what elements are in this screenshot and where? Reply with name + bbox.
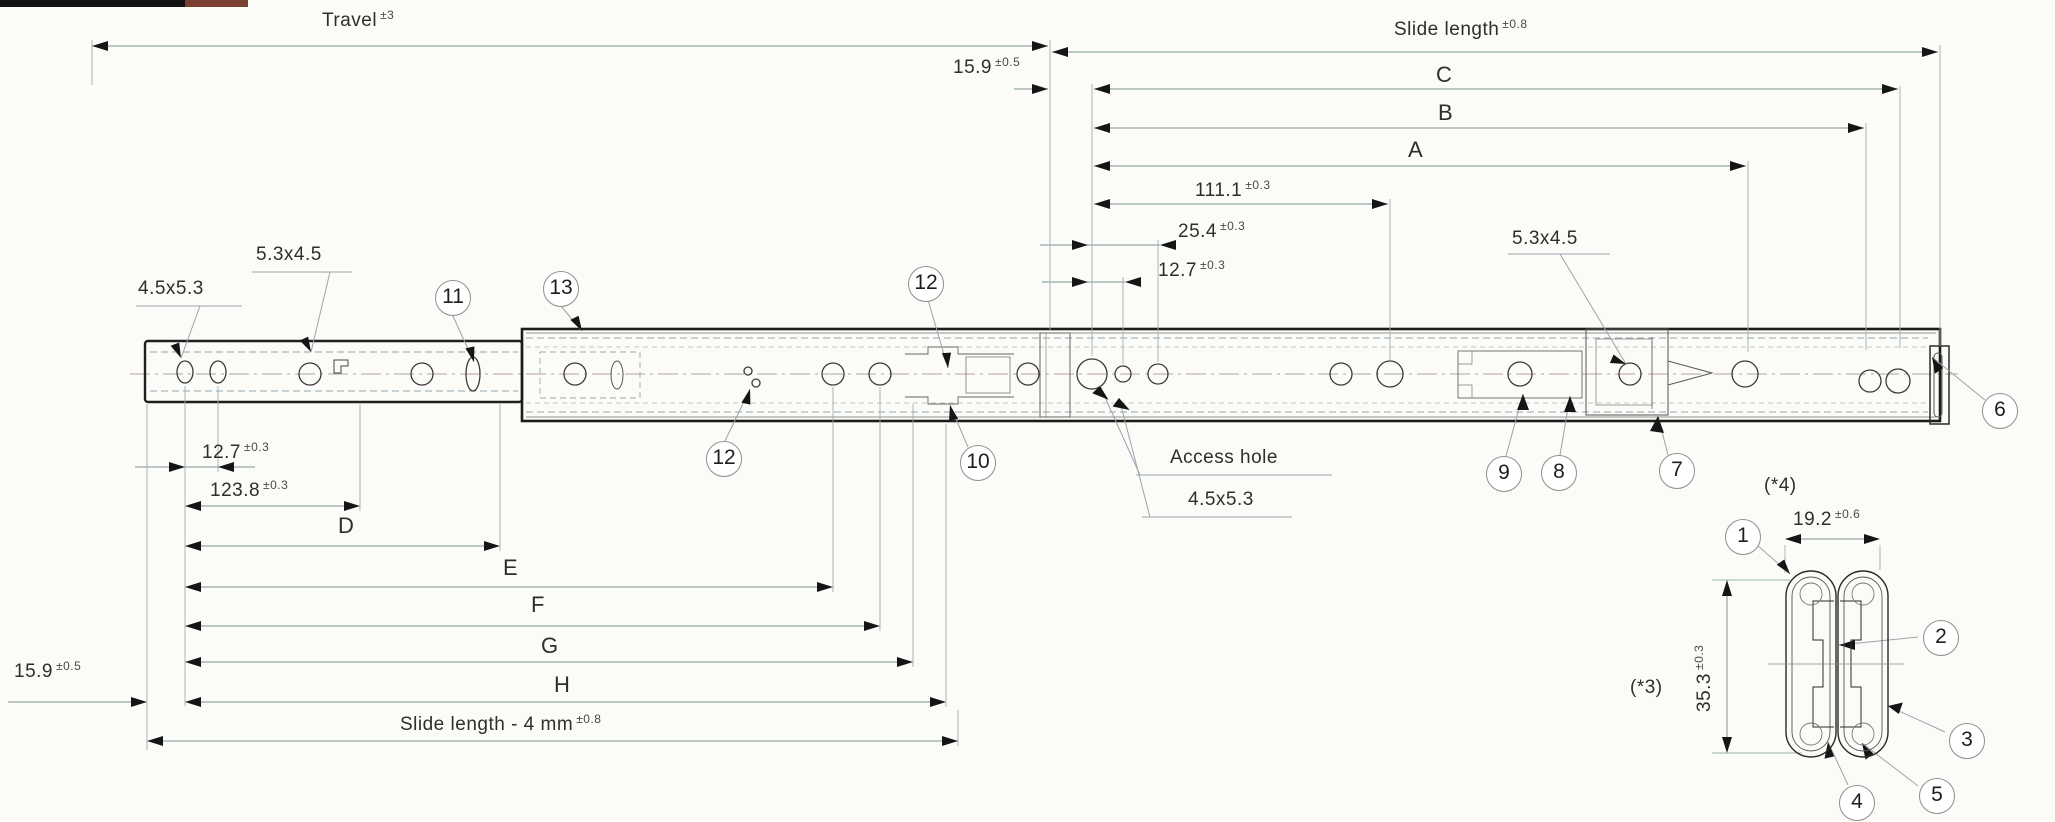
dimension-lines bbox=[8, 40, 1940, 753]
dim-slide-length-minus-tol: ±0.8 bbox=[576, 712, 601, 726]
dim-1238-label: 123.8±0.3 bbox=[210, 478, 288, 502]
dim-159-top-label: 15.9±0.5 bbox=[953, 55, 1020, 79]
dim-1238-value: 123.8 bbox=[210, 480, 260, 501]
balloon-2: 2 bbox=[1923, 620, 1959, 656]
drawer-slide-technical-drawing: Travel±3 Slide length±0.8 15.9±0.5 C B A… bbox=[0, 0, 2055, 822]
dim-E-label: E bbox=[503, 555, 518, 581]
dim-D-label: D bbox=[338, 513, 354, 539]
dim-G-label: G bbox=[541, 633, 559, 659]
dim-127-bottom-tol: ±0.3 bbox=[244, 440, 269, 454]
hole-5345-right-label: 5.3x4.5 bbox=[1512, 228, 1578, 250]
dim-1111-tol: ±0.3 bbox=[1245, 178, 1270, 192]
dim-127-top-value: 12.7 bbox=[1158, 260, 1197, 281]
balloon-12-lower: 12 bbox=[706, 441, 742, 477]
dim-127-top-label: 12.7±0.3 bbox=[1158, 258, 1225, 282]
balloon-1: 1 bbox=[1725, 519, 1761, 555]
balloon-8: 8 bbox=[1541, 455, 1577, 491]
dim-127-bottom-label: 12.7±0.3 bbox=[202, 440, 269, 464]
dim-1111-value: 111.1 bbox=[1195, 180, 1242, 201]
dim-159-bottom-label: 15.9±0.5 bbox=[14, 659, 81, 683]
hole-4553-left-label: 4.5x5.3 bbox=[138, 278, 204, 300]
dim-127-top-tol: ±0.3 bbox=[1200, 258, 1225, 272]
balloon-6: 6 bbox=[1982, 393, 2018, 429]
dim-159-top-tol: ±0.5 bbox=[995, 55, 1020, 69]
balloon-10: 10 bbox=[960, 445, 996, 481]
balloon-7: 7 bbox=[1659, 453, 1695, 489]
dim-slide-length-minus-value: Slide length - 4 mm bbox=[400, 714, 573, 735]
hole-5345-left-label: 5.3x4.5 bbox=[256, 244, 322, 266]
dim-353-value: 35.3 bbox=[1694, 673, 1715, 712]
dim-1238-tol: ±0.3 bbox=[263, 478, 288, 492]
balloon-3: 3 bbox=[1949, 723, 1985, 759]
note-star3-label: (*3) bbox=[1630, 677, 1663, 699]
balloon-11: 11 bbox=[435, 280, 471, 316]
dim-travel-label: Travel±3 bbox=[322, 8, 394, 32]
balloon-4: 4 bbox=[1839, 785, 1875, 821]
drawing-linework bbox=[0, 0, 2055, 822]
dim-F-label: F bbox=[531, 592, 545, 618]
dim-353-tol: ±0.3 bbox=[1692, 645, 1706, 670]
note-star4-label: (*4) bbox=[1764, 475, 1797, 497]
dim-353-label: 35.3±0.3 bbox=[1692, 645, 1716, 712]
balloon-5: 5 bbox=[1919, 778, 1955, 814]
dim-travel-value: Travel bbox=[322, 10, 377, 31]
dim-B-label: B bbox=[1438, 100, 1453, 126]
balloon-12-upper: 12 bbox=[908, 266, 944, 302]
dim-159-bottom-value: 15.9 bbox=[14, 661, 53, 682]
dim-192-value: 19.2 bbox=[1793, 509, 1832, 530]
dim-slide-length-tol: ±0.8 bbox=[1502, 17, 1527, 31]
dim-254-tol: ±0.3 bbox=[1220, 219, 1245, 233]
leader-arrowheads bbox=[168, 314, 1945, 762]
dim-travel-tol: ±3 bbox=[380, 8, 394, 22]
dim-C-label: C bbox=[1436, 62, 1452, 88]
mounting-holes bbox=[177, 357, 1910, 393]
dim-1111-label: 111.1±0.3 bbox=[1195, 178, 1271, 202]
dimension-arrowheads bbox=[92, 41, 1938, 753]
dim-159-bottom-tol: ±0.5 bbox=[56, 659, 81, 673]
dim-127-bottom-value: 12.7 bbox=[202, 442, 241, 463]
dim-A-label: A bbox=[1408, 137, 1423, 163]
cross-section-view bbox=[1768, 571, 1904, 757]
balloon-13: 13 bbox=[543, 271, 579, 307]
dim-192-tol: ±0.6 bbox=[1835, 507, 1860, 521]
dim-254-value: 25.4 bbox=[1178, 221, 1217, 242]
dim-slide-length-minus-label: Slide length - 4 mm±0.8 bbox=[400, 712, 601, 736]
slide-side-view bbox=[130, 329, 1958, 424]
dim-192-label: 19.2±0.6 bbox=[1793, 507, 1860, 531]
dim-254-label: 25.4±0.3 bbox=[1178, 219, 1245, 243]
dim-H-label: H bbox=[554, 672, 570, 698]
dim-159-top-value: 15.9 bbox=[953, 57, 992, 78]
dim-slide-length-label: Slide length±0.8 bbox=[1394, 17, 1528, 41]
balloon-9: 9 bbox=[1486, 456, 1522, 492]
access-hole-label: Access hole bbox=[1170, 447, 1278, 469]
dim-slide-length-value: Slide length bbox=[1394, 19, 1499, 40]
hole-4553-right-label: 4.5x5.3 bbox=[1188, 489, 1254, 511]
